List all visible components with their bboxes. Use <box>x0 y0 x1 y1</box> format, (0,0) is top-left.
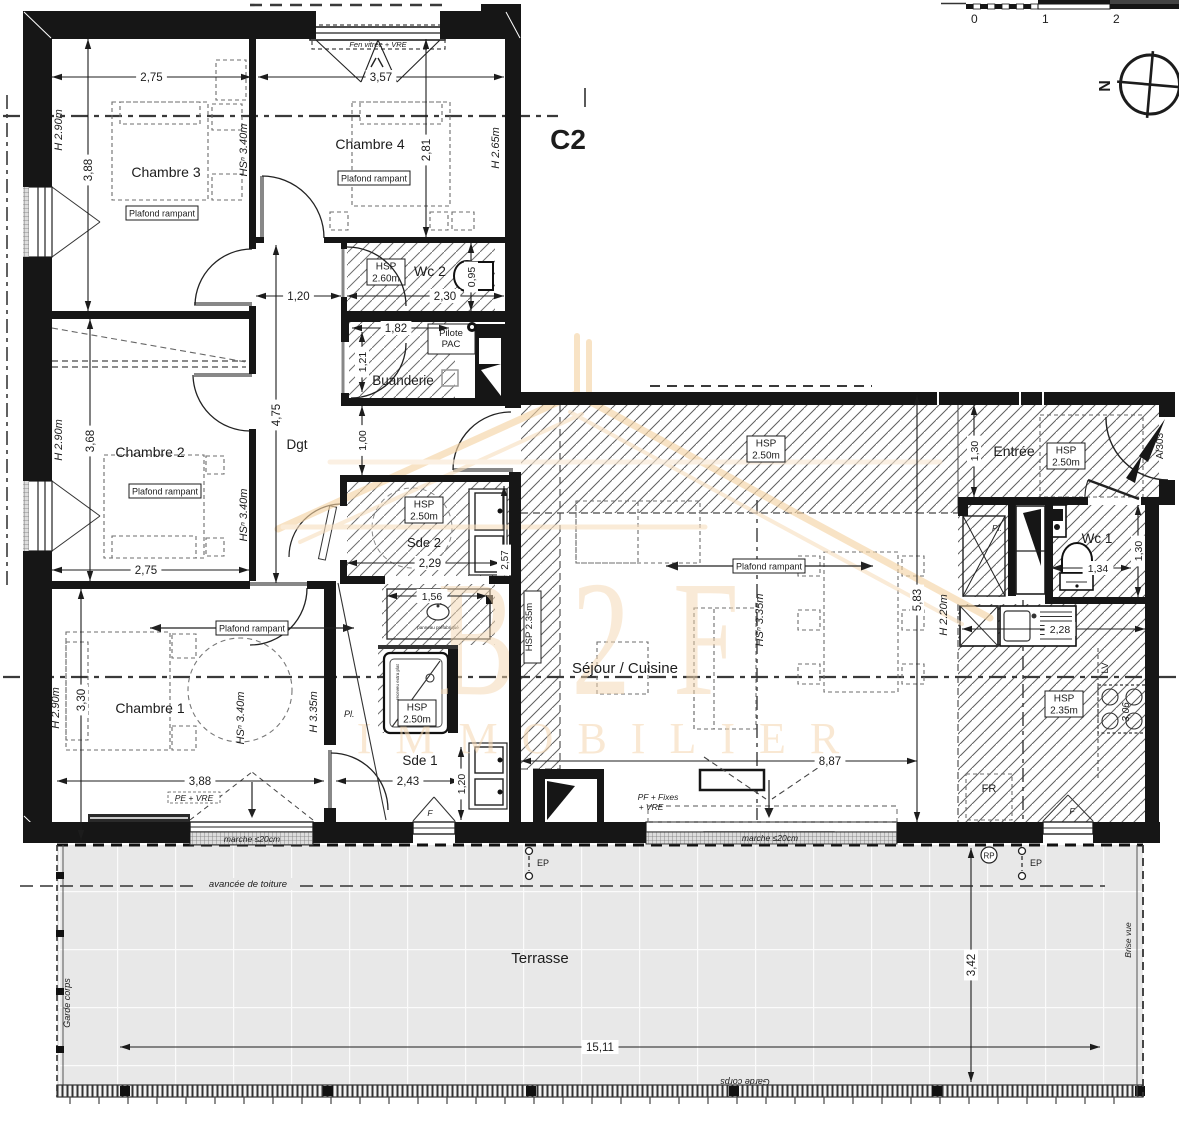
svg-text:Sde 2: Sde 2 <box>407 535 441 550</box>
svg-text:3,88: 3,88 <box>189 776 211 788</box>
svg-text:1,30: 1,30 <box>969 441 981 462</box>
svg-text:Pl.: Pl. <box>344 709 355 719</box>
svg-text:HSⁿ 3.40m: HSⁿ 3.40m <box>238 489 250 542</box>
svg-text:15,11: 15,11 <box>586 1042 614 1054</box>
svg-text:2,75: 2,75 <box>140 72 162 84</box>
svg-text:HSP: HSP <box>1056 446 1077 457</box>
svg-text:3,42: 3,42 <box>966 954 978 976</box>
svg-text:receveu extra plat: receveu extra plat <box>395 663 400 700</box>
svg-text:FR: FR <box>982 783 997 795</box>
svg-text:4,75: 4,75 <box>271 404 283 426</box>
svg-text:Garde corps: Garde corps <box>62 978 72 1028</box>
svg-text:Chambre 3: Chambre 3 <box>131 164 200 180</box>
svg-text:HSⁿ 3.40m: HSⁿ 3.40m <box>235 692 247 745</box>
svg-text:Chambre 2: Chambre 2 <box>115 444 184 460</box>
svg-text:H 2.90m: H 2.90m <box>53 109 65 151</box>
svg-text:PAC: PAC <box>442 339 461 350</box>
svg-text:HSⁿ 3.40m: HSⁿ 3.40m <box>238 124 250 177</box>
svg-text:H 2.20m: H 2.20m <box>938 594 950 636</box>
svg-text:HSP: HSP <box>376 262 397 273</box>
svg-text:HSⁿ 3.35m: HSⁿ 3.35m <box>754 594 766 647</box>
svg-text:1,56: 1,56 <box>422 591 443 603</box>
svg-text:Garde corps: Garde corps <box>720 1077 770 1087</box>
svg-text:H 2.65m: H 2.65m <box>490 127 502 169</box>
svg-text:3,68: 3,68 <box>85 430 97 452</box>
svg-text:Plafond rampant: Plafond rampant <box>129 209 196 219</box>
svg-text:F: F <box>673 548 739 730</box>
svg-text:Brise vue: Brise vue <box>1123 922 1133 958</box>
svg-text:Entrée: Entrée <box>993 443 1034 459</box>
svg-text:1,20: 1,20 <box>456 774 468 795</box>
svg-text:1,00: 1,00 <box>357 430 369 451</box>
svg-text:3,30: 3,30 <box>76 689 88 711</box>
svg-text:+ VRE: + VRE <box>639 802 664 812</box>
svg-text:HSP 2.35m: HSP 2.35m <box>524 603 535 651</box>
svg-text:2,30: 2,30 <box>434 291 456 303</box>
svg-text:2.50m: 2.50m <box>752 451 780 462</box>
svg-text:HSP: HSP <box>756 439 777 450</box>
svg-text:0,95: 0,95 <box>466 267 478 288</box>
svg-text:Chambre 4: Chambre 4 <box>335 136 404 152</box>
svg-text:HSP: HSP <box>414 500 435 511</box>
svg-text:Chambre 1: Chambre 1 <box>115 700 184 716</box>
svg-text:2,28: 2,28 <box>1050 624 1071 636</box>
svg-text:PE + VRE: PE + VRE <box>175 793 214 803</box>
svg-text:1,20: 1,20 <box>287 291 309 303</box>
svg-text:F: F <box>1069 806 1075 816</box>
svg-text:2.60m: 2.60m <box>372 274 400 285</box>
svg-text:H 2.90m: H 2.90m <box>50 687 62 729</box>
svg-text:Plafond rampant: Plafond rampant <box>736 562 803 572</box>
svg-text:Pl.: Pl. <box>992 523 1002 533</box>
svg-text:N: N <box>1097 80 1114 92</box>
svg-text:2,57: 2,57 <box>500 550 511 570</box>
svg-text:avancée de toiture: avancée de toiture <box>209 879 287 890</box>
svg-text:2.50m: 2.50m <box>403 715 431 726</box>
svg-text:Sde 1: Sde 1 <box>402 753 437 768</box>
svg-text:RP: RP <box>983 852 994 861</box>
svg-text:Plafond rampant: Plafond rampant <box>219 624 286 634</box>
svg-text:3,06: 3,06 <box>1121 702 1132 722</box>
svg-text:Wc 2: Wc 2 <box>414 263 446 279</box>
svg-text:EP: EP <box>1030 858 1042 868</box>
svg-text:Séjour / Cuisine: Séjour / Cuisine <box>572 660 678 677</box>
svg-text:8,87: 8,87 <box>819 756 841 768</box>
svg-text:2,81: 2,81 <box>421 139 433 161</box>
svg-text:2.50m: 2.50m <box>410 512 438 523</box>
svg-text:1,21: 1,21 <box>357 352 369 373</box>
svg-text:2,43: 2,43 <box>397 776 419 788</box>
svg-text:3,88: 3,88 <box>83 159 95 181</box>
svg-text:HSP: HSP <box>407 703 428 714</box>
svg-text:0: 0 <box>971 12 978 26</box>
svg-text:1: 1 <box>1042 12 1049 26</box>
svg-text:H 2.90m: H 2.90m <box>53 419 65 461</box>
svg-text:C2: C2 <box>550 124 586 155</box>
svg-text:2.50m: 2.50m <box>1052 458 1080 469</box>
svg-text:2,29: 2,29 <box>419 558 441 570</box>
svg-text:5,83: 5,83 <box>912 589 924 611</box>
svg-text:Wc 1: Wc 1 <box>1082 531 1113 546</box>
svg-text:2,75: 2,75 <box>135 565 157 577</box>
svg-text:1,30: 1,30 <box>1133 541 1145 562</box>
svg-text:3,57: 3,57 <box>370 72 392 84</box>
svg-text:1,34: 1,34 <box>1088 563 1109 575</box>
svg-text:Plafond rampant: Plafond rampant <box>132 487 199 497</box>
svg-text:marche ≤20cm: marche ≤20cm <box>224 834 280 844</box>
svg-text:Buanderie: Buanderie <box>372 373 434 388</box>
svg-text:Plafond rampant: Plafond rampant <box>341 174 408 184</box>
svg-text:A/303: A/303 <box>1155 432 1166 459</box>
svg-text:2: 2 <box>571 548 630 730</box>
svg-text:LV: LV <box>1100 662 1111 674</box>
svg-text:H 3.35m: H 3.35m <box>308 691 320 733</box>
svg-text:1,82: 1,82 <box>385 323 407 335</box>
svg-text:EP: EP <box>537 858 549 868</box>
svg-text:Dgt: Dgt <box>286 437 307 452</box>
svg-text:HSP: HSP <box>1054 694 1075 705</box>
svg-text:2.35m: 2.35m <box>1050 706 1078 717</box>
svg-text:2: 2 <box>1113 12 1120 26</box>
svg-text:marche ≤20cm: marche ≤20cm <box>742 833 798 843</box>
svg-text:PF + Fixes: PF + Fixes <box>638 792 679 802</box>
svg-text:Terrasse: Terrasse <box>511 950 569 967</box>
svg-text:F: F <box>427 808 433 818</box>
